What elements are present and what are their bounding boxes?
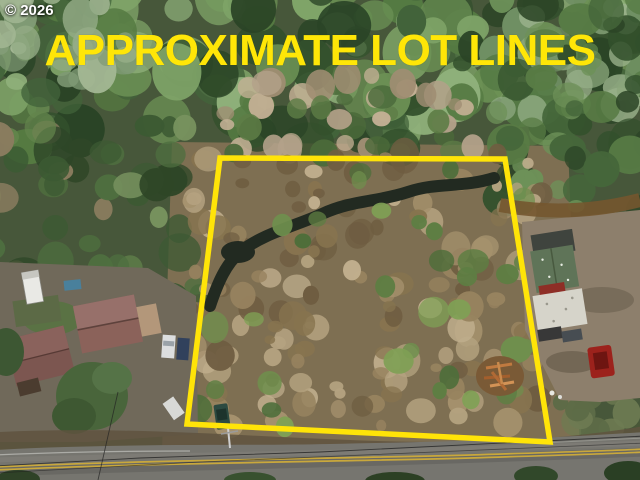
creek-pond [221, 241, 255, 263]
log-pile [476, 356, 524, 396]
lot-lines-banner: APPROXIMATE LOT LINES [0, 27, 640, 75]
blue-car [176, 338, 190, 361]
conifer-top [92, 362, 132, 394]
red-car [587, 345, 615, 379]
copyright-watermark: © 2026 [5, 2, 54, 19]
white-truck [161, 335, 176, 359]
debris-2 [558, 395, 562, 399]
conifer-shadow [52, 398, 96, 434]
aerial-photo: APPROXIMATE LOT LINES © 2026 [0, 0, 640, 480]
garden-tarp [64, 279, 82, 291]
debris [550, 391, 555, 396]
